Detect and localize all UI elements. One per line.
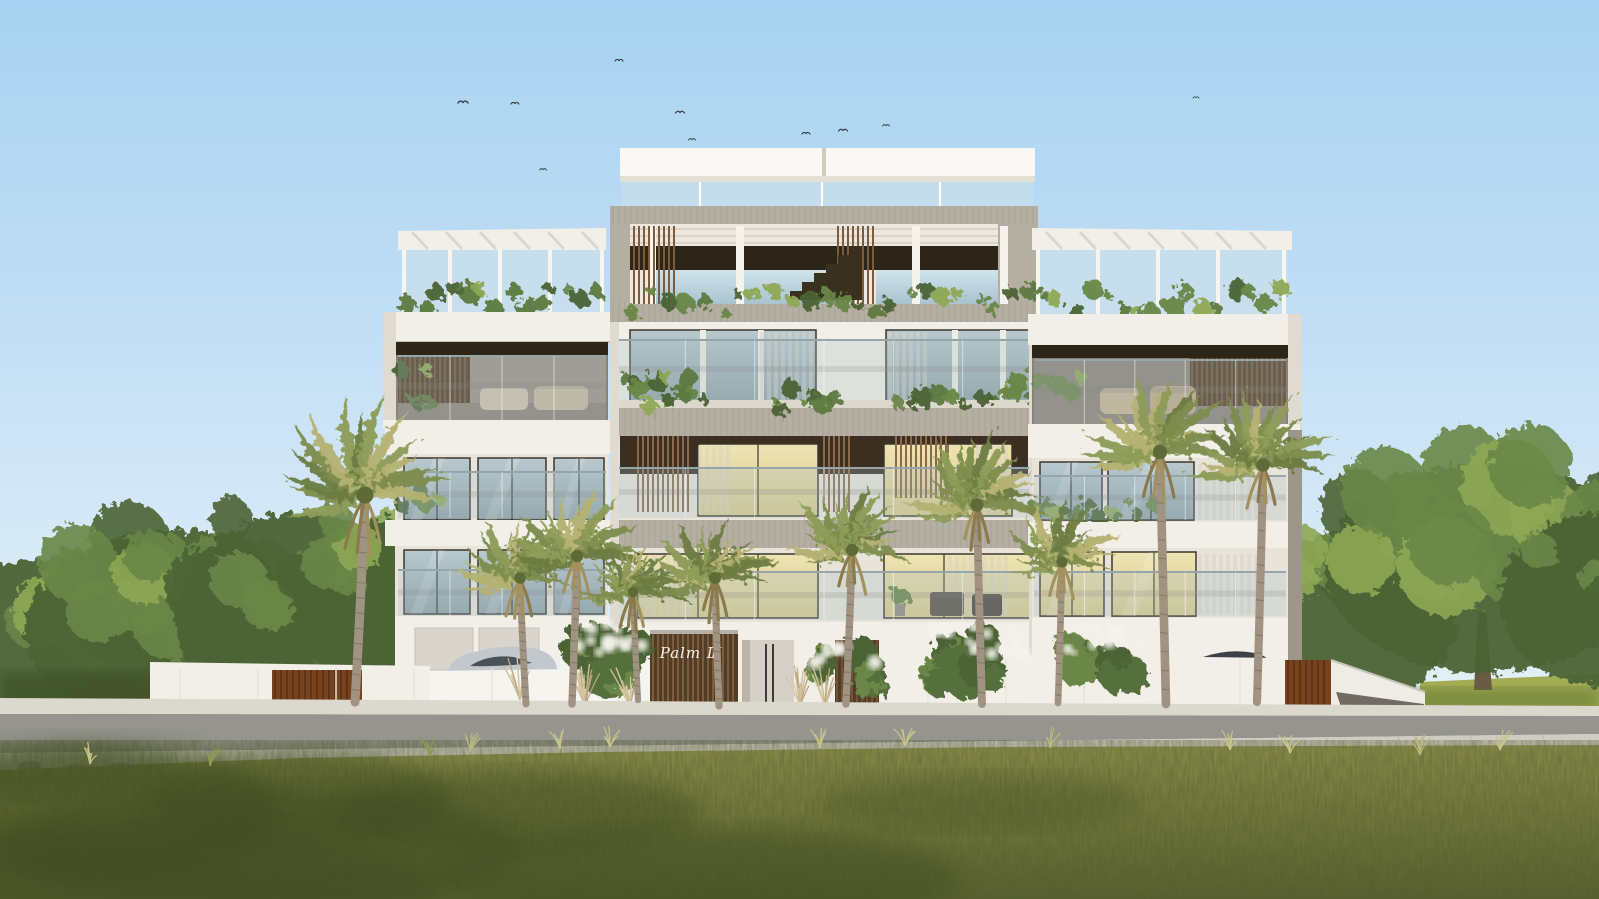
balcony-plant	[647, 286, 656, 295]
white-flower	[954, 623, 963, 632]
balcony-plant	[818, 288, 834, 304]
balcony-plant	[571, 289, 589, 307]
balcony-plant	[782, 380, 801, 399]
balcony-plant	[687, 388, 696, 397]
tree-canopy	[124, 530, 174, 580]
balcony-plant	[733, 290, 743, 300]
balcony-plant	[1004, 287, 1018, 301]
palm-crown-core	[628, 587, 638, 597]
balcony-plant	[675, 293, 694, 312]
architectural-rendering: Palm Ⅲ	[0, 0, 1599, 899]
terrace-post	[600, 250, 604, 312]
side-return	[1288, 314, 1302, 430]
white-flower	[623, 643, 630, 650]
balcony-plant	[426, 283, 444, 301]
white-flower	[832, 644, 843, 655]
balcony-plant	[834, 291, 853, 310]
balcony-plant	[630, 380, 648, 398]
balcony-plant	[397, 295, 416, 314]
white-flower	[986, 648, 998, 660]
balcony-plant	[882, 298, 896, 312]
portal-shade	[742, 640, 750, 704]
palm-crown-core	[514, 572, 526, 584]
balcony-plant	[1176, 283, 1193, 300]
white-flower	[932, 623, 946, 637]
white-flower	[996, 643, 1004, 651]
tree-canopy	[1521, 532, 1558, 569]
palm-crown-core	[1153, 445, 1167, 459]
white-flower	[868, 655, 882, 669]
balcony-plant	[854, 301, 864, 311]
white-flower	[585, 622, 597, 634]
balcony-plant	[960, 400, 971, 411]
palm-crown-core	[709, 572, 721, 584]
palm-crown-core	[1056, 556, 1067, 567]
terrace-post	[448, 250, 452, 312]
balcony-plant	[932, 287, 950, 305]
balcony-plant	[505, 283, 521, 299]
balcony-plant	[984, 300, 999, 315]
white-flower	[824, 648, 833, 657]
balcony-plant	[1004, 381, 1024, 401]
tree-canopy	[210, 551, 266, 607]
balcony-plant	[1271, 279, 1290, 298]
balcony-plant	[786, 295, 798, 307]
white-flower	[969, 623, 976, 630]
white-flower	[1090, 624, 1100, 634]
building-sign: Palm Ⅲ	[659, 644, 723, 662]
parapet-shadow	[620, 176, 1035, 182]
floor-band	[385, 428, 612, 454]
balcony-plant	[1046, 291, 1062, 307]
terrace-post	[1156, 250, 1160, 314]
balcony-plant	[772, 401, 789, 418]
balcony-plant	[698, 393, 708, 403]
palm-crown-core	[970, 498, 983, 511]
roof-parapet	[620, 148, 1035, 178]
palm-crown-core	[846, 544, 858, 556]
balcony-plant	[531, 293, 550, 312]
white-flower	[602, 634, 616, 648]
balcony-plant	[907, 288, 916, 297]
penthouse-back-wall	[630, 246, 998, 270]
white-flower	[1011, 637, 1022, 648]
terrace-post	[1216, 250, 1220, 314]
balcony-plant	[767, 283, 783, 299]
balcony-plant	[543, 282, 554, 293]
balcony-plant	[660, 371, 673, 384]
white-flower	[1077, 623, 1088, 634]
white-flower	[1011, 647, 1021, 657]
white-flower	[1092, 638, 1098, 644]
tree-shadow	[820, 774, 1140, 830]
balcony-fascia	[383, 312, 612, 342]
balcony-plant	[891, 397, 904, 410]
tree-canopy	[1489, 424, 1572, 507]
balcony-soffit	[1032, 345, 1288, 358]
balcony-plant	[640, 398, 657, 415]
tree-canopy	[39, 525, 117, 603]
white-flower	[1123, 640, 1130, 647]
white-flower	[808, 655, 823, 670]
white-flower	[1066, 626, 1072, 632]
balcony-plant	[1103, 291, 1111, 299]
white-flower	[594, 648, 603, 657]
balcony-plant	[1240, 283, 1255, 298]
white-flower	[1137, 638, 1145, 646]
white-flower	[601, 618, 612, 629]
roof-glass-rail	[622, 182, 1033, 206]
balcony-plant	[1083, 279, 1103, 299]
balcony-sill	[383, 420, 612, 428]
tree-canopy	[1408, 500, 1493, 585]
balcony-plant	[827, 390, 842, 405]
white-flower	[1117, 628, 1125, 636]
balcony-plant	[719, 308, 730, 319]
balcony-plant	[952, 288, 964, 300]
palm-crown-core	[1256, 458, 1270, 472]
balcony-plant	[696, 294, 711, 309]
balcony-soffit	[396, 342, 608, 355]
balcony-plant	[625, 307, 640, 322]
balcony-plant	[1255, 294, 1274, 313]
tree-canopy	[209, 497, 252, 540]
balcony-plant	[588, 284, 603, 299]
balcony-plant	[944, 389, 959, 404]
balcony-plant	[800, 291, 820, 311]
palm-crown-core	[571, 550, 583, 562]
balcony-plant	[563, 284, 574, 295]
palm-crown-core	[357, 487, 374, 504]
pergola-roof	[398, 228, 606, 250]
balcony-plant	[745, 286, 760, 301]
white-flower	[586, 636, 596, 646]
bush-foliage	[1109, 645, 1132, 668]
balcony-plant	[619, 373, 631, 385]
balcony-fascia	[1028, 314, 1300, 345]
white-flower	[1011, 626, 1017, 632]
scene-canvas: Palm Ⅲ	[0, 0, 1599, 899]
balcony-plant	[975, 294, 985, 304]
balcony-plant	[472, 280, 486, 294]
sign-wall-cap	[650, 630, 738, 634]
balcony-plant	[866, 302, 883, 319]
entrance-sign-wall	[650, 630, 738, 708]
terrace-post	[1036, 250, 1040, 314]
grass-field	[0, 726, 1599, 899]
white-flower	[1064, 645, 1073, 654]
balcony-plant	[976, 390, 992, 406]
balcony-plant	[662, 394, 675, 407]
